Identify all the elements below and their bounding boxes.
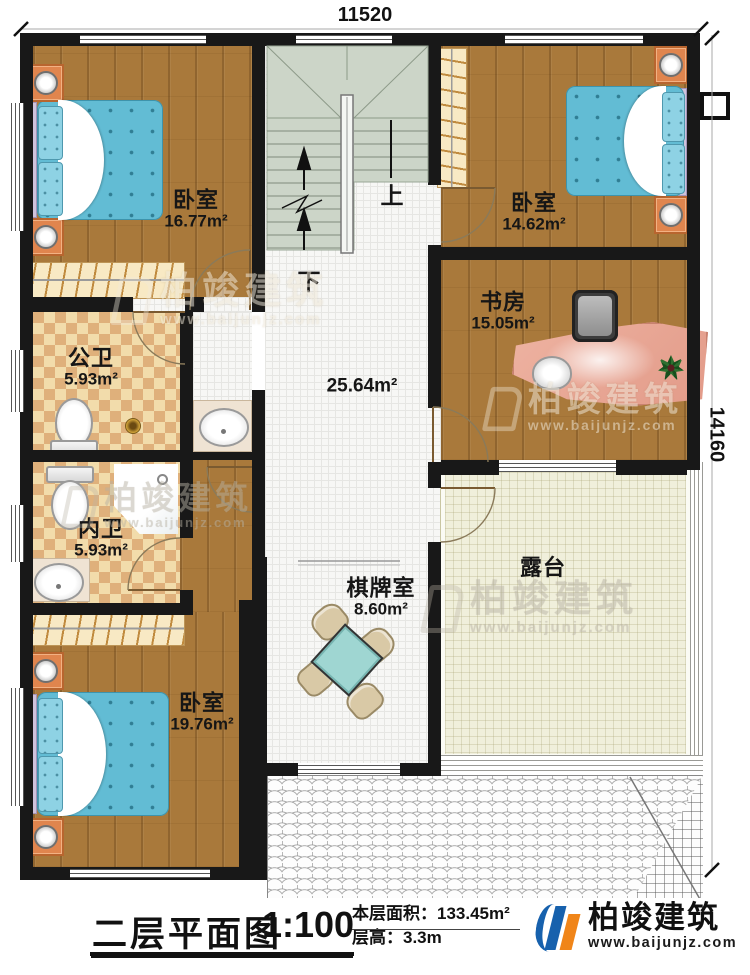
wall-innerbath-bottom xyxy=(20,603,193,615)
wall-bath-divider xyxy=(180,312,193,462)
nightstand xyxy=(654,46,688,84)
wall-flue-box xyxy=(700,92,730,120)
title-underline xyxy=(90,952,354,956)
room-label-bedroom-bottom-left: 卧室19.76m² xyxy=(170,692,233,735)
wall-counter-divider xyxy=(193,452,252,460)
brand-logo-icon xyxy=(536,900,580,956)
window-left-innerbath xyxy=(11,505,24,562)
wall-stair-right-b xyxy=(428,245,441,408)
floor-plan-page: 卧室16.77m² 卧室14.62m² 书房15.05m² 公卫5.93m² 内… xyxy=(0,0,750,975)
wall-stair-right-c xyxy=(428,462,441,488)
window-study-terrace xyxy=(499,463,616,472)
office-chair xyxy=(572,290,618,342)
pillow xyxy=(662,92,685,142)
nightstand xyxy=(28,652,64,690)
wardrobe xyxy=(28,612,185,646)
brand-logo: 柏竣建筑 www.baijunjz.com xyxy=(536,900,737,956)
wall-gameroom-bottom-a xyxy=(267,763,298,776)
window-top-bedroomtl xyxy=(80,35,206,44)
pillow xyxy=(38,698,63,754)
terrace-parapet-right xyxy=(690,462,703,775)
wall-study-bottom-b xyxy=(616,460,687,475)
wall-counter-right xyxy=(252,390,265,557)
room-label-game-room: 棋牌室8.60m² xyxy=(346,577,415,620)
pillow xyxy=(662,144,685,194)
wall-gameroom-bottom-b xyxy=(400,763,441,776)
room-label-public-bath: 公卫5.93m² xyxy=(64,347,118,390)
wall-stair-right-a xyxy=(428,33,441,185)
sink xyxy=(199,408,249,447)
desk-lamp xyxy=(532,356,572,390)
nightstand xyxy=(654,196,688,234)
window-left-bedroombl xyxy=(11,688,24,806)
wall-bedroomtr-bottom xyxy=(441,247,687,260)
stairs-down-label: 下 xyxy=(298,269,321,294)
dimension-top: 11520 xyxy=(338,4,393,27)
wardrobe xyxy=(28,262,185,299)
room-label-study: 书房15.05m² xyxy=(471,291,534,334)
plan-title: 二层平面图 xyxy=(92,906,282,957)
floor-drain-icon xyxy=(125,418,141,434)
room-label-terrace: 露台 xyxy=(520,556,566,580)
stairs-up-label: 上 xyxy=(381,183,404,208)
pillow xyxy=(38,756,63,812)
wall-hall-terrace xyxy=(428,542,441,763)
roof-shingles xyxy=(267,775,703,903)
floor-terrace xyxy=(441,468,690,758)
wardrobe xyxy=(437,48,467,188)
plan-scale: 1:100 xyxy=(262,904,354,946)
room-label-bedroom-top-left: 卧室16.77m² xyxy=(164,189,227,232)
wall-bedroombl-right xyxy=(239,600,252,880)
wall-study-bottom-a xyxy=(441,460,499,475)
nightstand xyxy=(28,64,64,102)
wall-innerbath-right-a xyxy=(180,462,193,538)
window-top-stairs xyxy=(296,35,392,44)
floor-stats: 本层面积：133.45m² 层高：3.3m xyxy=(352,902,510,950)
nightstand xyxy=(28,818,64,856)
wall-right xyxy=(687,33,700,470)
room-label-bedroom-top-right: 卧室14.62m² xyxy=(502,192,565,235)
window-top-bedroomtr xyxy=(505,35,643,44)
sink xyxy=(34,563,84,602)
pillow xyxy=(38,162,63,216)
floor-sink-nook xyxy=(193,312,252,404)
window-gameroom-bottom xyxy=(298,765,400,774)
dimension-right: 14160 xyxy=(704,407,727,463)
wall-gameroom-left xyxy=(252,557,267,880)
stats-divider xyxy=(352,929,520,930)
hall-area-label: 25.64m² xyxy=(327,377,398,398)
window-left-publicbath xyxy=(11,350,24,412)
window-left-bedroomtl xyxy=(11,103,24,231)
brand-name: 柏竣建筑 xyxy=(588,900,720,935)
brand-website: www.baijunjz.com xyxy=(588,933,737,955)
room-label-inner-bath: 内卫5.93m² xyxy=(74,518,128,561)
window-bedroombl-bottom xyxy=(70,869,210,878)
wall-bedroomtl-bottom-b xyxy=(185,297,204,312)
nightstand xyxy=(28,218,64,256)
title-block: 二层平面图 1:100 本层面积：133.45m² 层高：3.3m 柏竣建筑 w… xyxy=(0,898,750,975)
floor-area-row: 本层面积：133.45m² xyxy=(352,902,510,926)
wall-publicbath-bottom xyxy=(20,450,180,462)
wall-bedroomtl-bottom-a xyxy=(20,297,133,312)
pillow xyxy=(38,106,63,160)
terrace-parapet-bottom xyxy=(441,755,703,775)
wall-bedroomtl-right xyxy=(252,33,265,312)
